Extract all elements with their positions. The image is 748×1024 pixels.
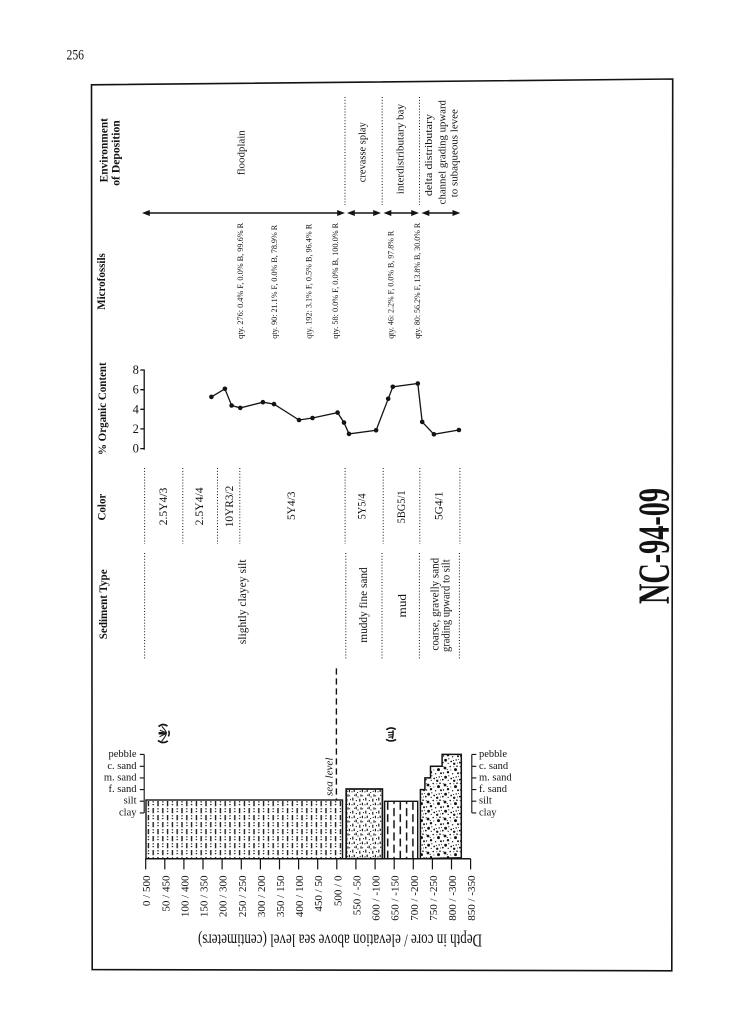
svg-text:50 / 450: 50 / 450 (160, 875, 172, 912)
svg-text:silt: silt (479, 796, 492, 807)
svg-text:f. sand: f. sand (109, 784, 138, 795)
svg-text:crevasse splay: crevasse splay (357, 122, 369, 182)
svg-text:Depth in core / elevation abov: Depth in core / elevation above sea leve… (198, 929, 482, 950)
svg-text:c. sand: c. sand (479, 761, 509, 772)
svg-text:100 / 400: 100 / 400 (179, 875, 191, 917)
svg-text:of Deposition: of Deposition (109, 120, 123, 186)
svg-text:5Y4/3: 5Y4/3 (286, 491, 298, 520)
svg-text:delta distributary: delta distributary (423, 113, 435, 196)
svg-text:Color: Color (96, 494, 108, 521)
svg-text:qty. 276: 0.4% F, 0.0% B, 99.: qty. 276: 0.4% F, 0.0% B, 99.6% R (236, 222, 245, 339)
svg-text:clay: clay (479, 807, 497, 818)
svg-text:m. sand: m. sand (104, 772, 137, 783)
svg-text:250 / 250: 250 / 250 (237, 875, 249, 917)
svg-text:qty. 80: 56.2% F, 13.8% B, 30: qty. 80: 56.2% F, 13.8% B, 30.0% R (413, 222, 422, 339)
svg-text:650 / -150: 650 / -150 (390, 875, 402, 921)
svg-text:350 / 150: 350 / 150 (275, 875, 287, 917)
svg-text:800 / -300: 800 / -300 (447, 875, 459, 921)
svg-text:Microfossils: Microfossils (96, 253, 108, 310)
svg-text:qty. 192: 3.1% F, 0.5% B, 96.: qty. 192: 3.1% F, 0.5% B, 96.4% R (305, 223, 314, 339)
svg-text:550 / -50: 550 / -50 (351, 875, 363, 915)
svg-text:channel grading upward: channel grading upward (436, 100, 448, 205)
svg-text:400 / 100: 400 / 100 (294, 875, 306, 917)
svg-text:300 / 200: 300 / 200 (256, 875, 268, 917)
svg-text:850 / -350: 850 / -350 (466, 875, 478, 921)
svg-text:floodplain: floodplain (235, 130, 247, 175)
svg-text:450 / 50: 450 / 50 (313, 875, 325, 912)
svg-text:m. sand: m. sand (479, 772, 512, 783)
svg-text:600 / -100: 600 / -100 (371, 875, 383, 921)
svg-text:5G4/1: 5G4/1 (434, 491, 446, 520)
svg-text:c. sand: c. sand (107, 761, 137, 772)
svg-text:10YR3/2: 10YR3/2 (224, 486, 236, 528)
svg-text:5BG5/1: 5BG5/1 (396, 490, 408, 523)
svg-text:2.5Y4/3: 2.5Y4/3 (158, 487, 170, 525)
svg-text:2.5Y4/4: 2.5Y4/4 (194, 487, 206, 525)
svg-text:8: 8 (133, 363, 139, 377)
svg-text:256: 256 (67, 47, 85, 63)
svg-text:clay: clay (119, 807, 137, 818)
svg-text:700 / -200: 700 / -200 (409, 875, 421, 921)
svg-text:4: 4 (133, 402, 140, 416)
svg-text:6: 6 (133, 383, 139, 397)
svg-text:pebble: pebble (479, 749, 507, 760)
svg-text:500 / 0: 500 / 0 (332, 875, 344, 906)
svg-text:to subaqueous levee: to subaqueous levee (448, 109, 460, 197)
svg-text:mud: mud (397, 594, 409, 618)
svg-text:interdistributary bay: interdistributary bay (395, 103, 407, 194)
svg-text:qty. 58: 0.0% F, 0.0% B, 100.: qty. 58: 0.0% F, 0.0% B, 100.0% R (331, 222, 340, 339)
svg-text:5Y5/4: 5Y5/4 (356, 493, 368, 519)
svg-text:0 / 500: 0 / 500 (141, 875, 153, 906)
svg-text:qty. 90: 21.1% F, 0.0% B, 78.: qty. 90: 21.1% F, 0.0% B, 78.9% R (270, 224, 279, 339)
svg-text:grading upward to silt: grading upward to silt (441, 559, 453, 652)
svg-text:qty. 46: 2.2% F, 0.0% B, 97.8: qty. 46: 2.2% F, 0.0% B, 97.8% R (387, 230, 396, 339)
svg-text:pebble: pebble (109, 749, 137, 760)
svg-text:slightly clayey silt: slightly clayey silt (237, 559, 249, 645)
svg-text:muddy fine sand: muddy fine sand (358, 567, 370, 643)
svg-text:Sediment Type: Sediment Type (98, 569, 110, 639)
svg-text:200 / 300: 200 / 300 (218, 875, 230, 917)
svg-text:NC-94-09: NC-94-09 (630, 488, 679, 604)
svg-text:2: 2 (133, 422, 139, 436)
svg-text:f. sand: f. sand (479, 784, 508, 795)
svg-text:sea level: sea level (325, 757, 336, 796)
svg-text:silt: silt (124, 796, 137, 807)
svg-text:750 / -250: 750 / -250 (428, 875, 440, 921)
svg-text:150 / 350: 150 / 350 (199, 875, 211, 917)
svg-text:% Organic Content: % Organic Content (97, 362, 109, 455)
svg-text:0: 0 (133, 442, 139, 456)
